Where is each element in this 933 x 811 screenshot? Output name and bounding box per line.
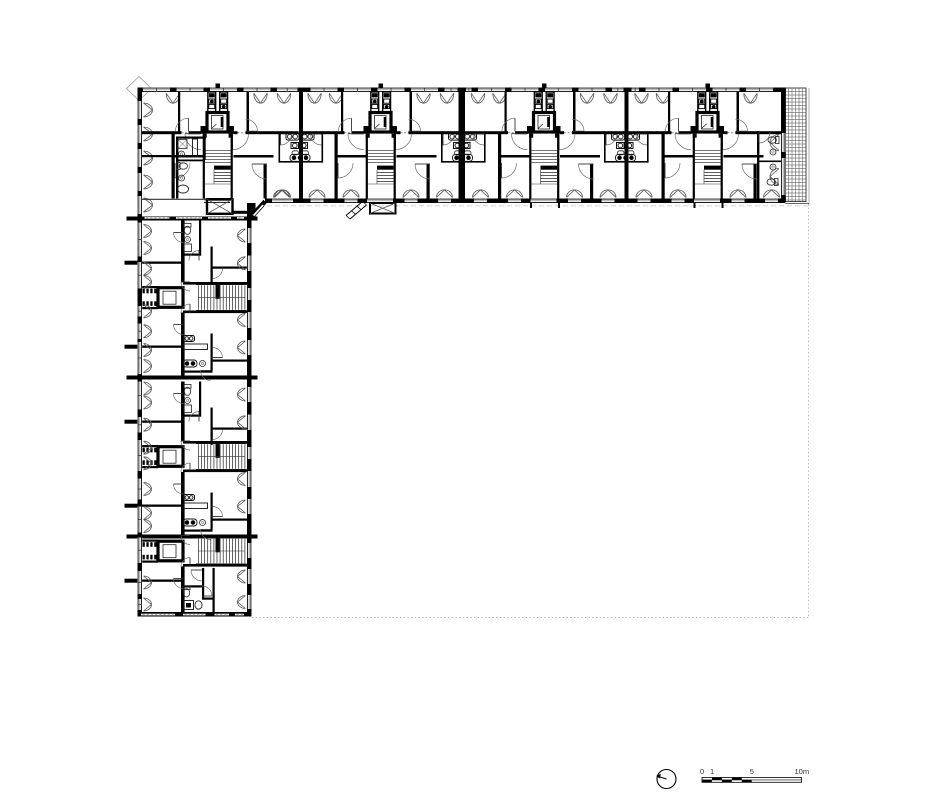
svg-text:1: 1 [710,767,714,776]
svg-text:10m: 10m [795,767,810,776]
svg-text:0: 0 [700,767,704,776]
svg-text:5: 5 [750,767,754,776]
